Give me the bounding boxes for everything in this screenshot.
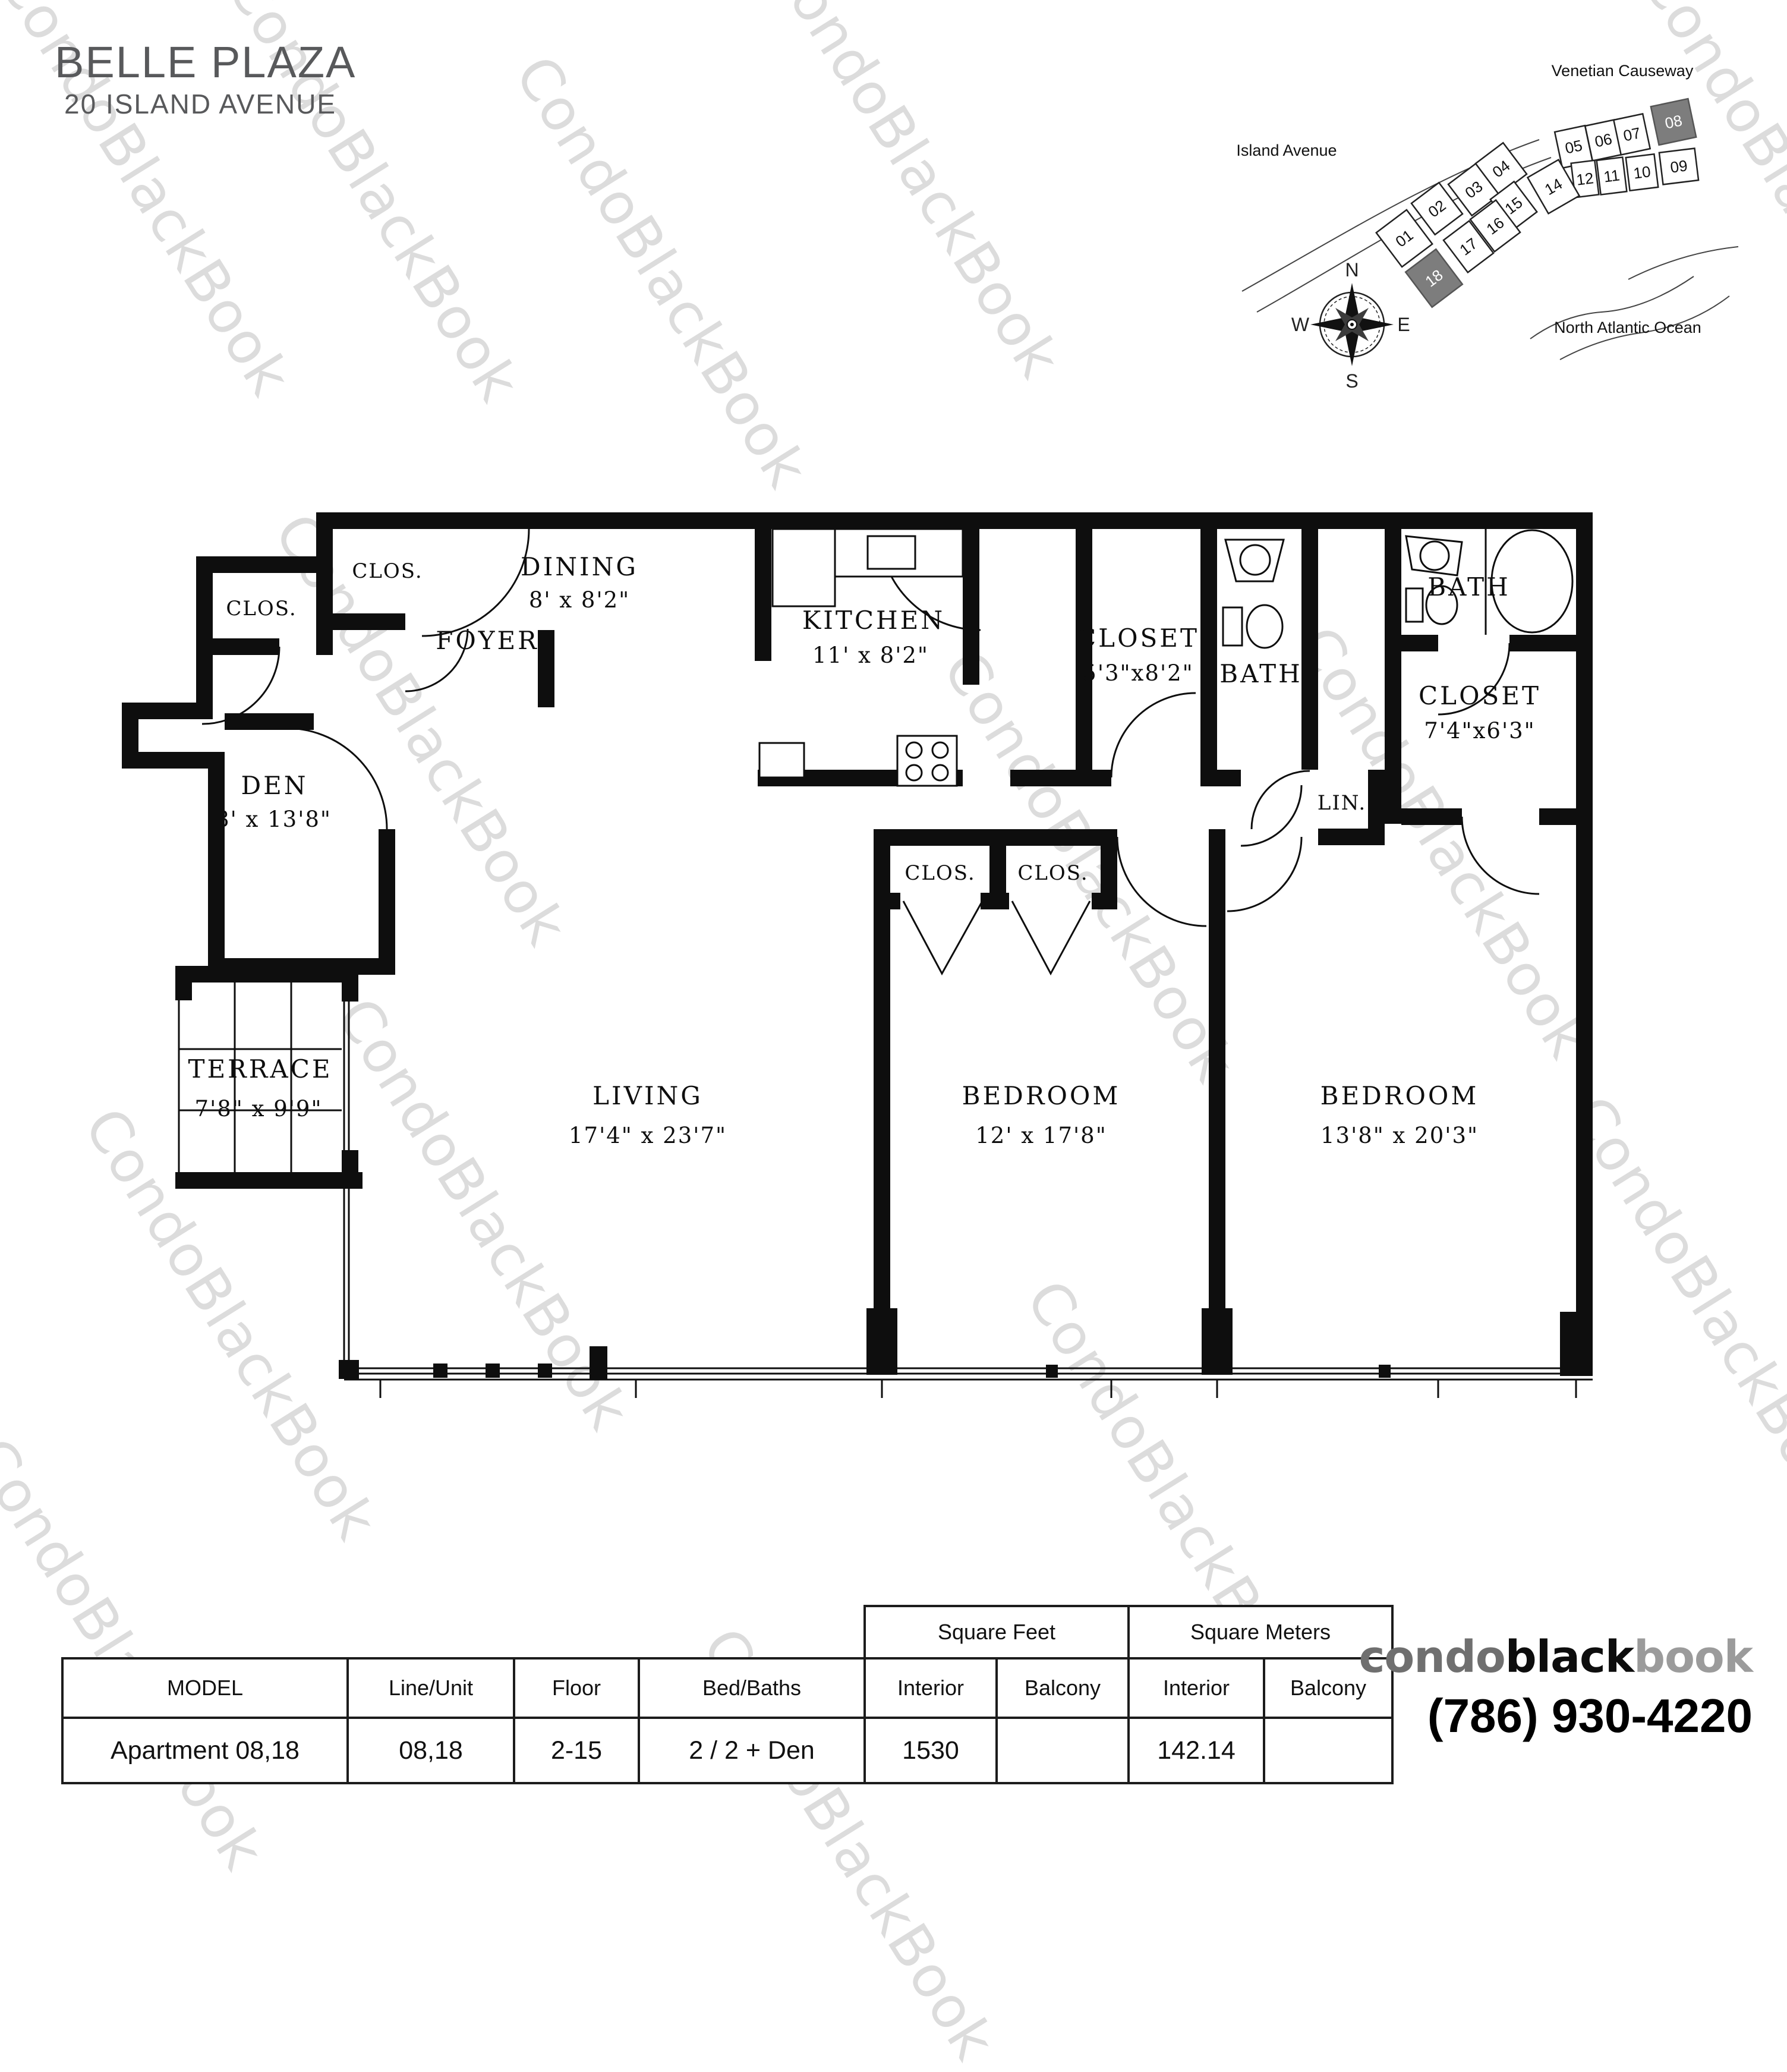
room-dims-kitchen: 11' x 8'2" (812, 643, 929, 668)
bedroom2-door-arc (1227, 837, 1301, 911)
room-label-bedroom-1: BEDROOM (962, 1081, 1121, 1110)
svg-text:07: 07 (1622, 124, 1643, 144)
compass-rose-icon: N E S W (1291, 259, 1410, 392)
room-dims-hall-closet: 5'3"x8'2" (1082, 660, 1193, 686)
col-header-sm-interior: Interior (1129, 1658, 1264, 1718)
svg-text:10: 10 (1632, 162, 1652, 182)
svg-text:12: 12 (1575, 169, 1594, 188)
label-north-atlantic-ocean: North Atlantic Ocean (1554, 319, 1701, 336)
door-arcs (202, 529, 1539, 974)
refrigerator-icon (773, 529, 835, 606)
unit-09: 09 (1659, 149, 1698, 185)
col-header-line-unit: Line/Unit (348, 1658, 514, 1718)
room-label-linen: LIN. (1318, 791, 1366, 815)
compass-south: S (1345, 370, 1358, 392)
compass-east: E (1397, 314, 1410, 335)
building-address: 20 ISLAND AVENUE (64, 88, 336, 120)
cell-sm-interior: 142.14 (1129, 1718, 1264, 1783)
label-island-avenue: Island Avenue (1236, 141, 1337, 159)
group-header-square-feet: Square Feet (865, 1606, 1129, 1658)
col-header-floor: Floor (514, 1658, 639, 1718)
floor-plan: CLOS. CLOS. FOYER DINING 8' x 8'2" KITCH… (101, 505, 1599, 1444)
cell-model: Apartment 08,18 (62, 1718, 348, 1783)
col-header-model: MODEL (62, 1658, 348, 1718)
col-header-bed-baths: Bed/Baths (639, 1658, 865, 1718)
building-title: BELLE PLAZA (55, 37, 356, 87)
room-label-bath-2: BATH (1427, 572, 1511, 602)
col-header-sf-interior: Interior (865, 1658, 997, 1718)
col-header-sf-balcony: Balcony (997, 1658, 1129, 1718)
cell-bed-baths: 2 / 2 + Den (639, 1718, 865, 1783)
unit-spec-table: Square Feet Square Meters MODEL Line/Uni… (61, 1605, 1394, 1784)
unit-11: 11 (1597, 158, 1627, 195)
table-spacer (62, 1606, 865, 1658)
condoblackbook-logo: condoblackbook (1359, 1632, 1753, 1683)
bifold-door-icon (1012, 901, 1090, 974)
room-label-bedroom-2: BEDROOM (1320, 1081, 1479, 1110)
room-dims-master-closet: 7'4"x6'3" (1424, 718, 1535, 744)
contact-phone: (786) 930-4220 (1359, 1689, 1753, 1743)
cell-sf-balcony (997, 1718, 1129, 1783)
entry-door-arc (422, 529, 529, 636)
kitchen-counter (759, 743, 804, 777)
cell-sf-interior: 1530 (865, 1718, 997, 1783)
svg-text:08: 08 (1663, 111, 1684, 132)
hall-closet-door-arc (1111, 693, 1196, 777)
shoreline (1628, 247, 1738, 279)
room-label-closet-entry-2: CLOS. (352, 559, 423, 583)
room-label-bath-1: BATH (1219, 659, 1303, 688)
room-label-terrace: TERRACE (188, 1054, 332, 1084)
table-row: Apartment 08,18 08,18 2-15 2 / 2 + Den 1… (62, 1718, 1392, 1783)
room-label-master-closet: CLOSET (1419, 681, 1541, 710)
group-header-square-meters: Square Meters (1129, 1606, 1392, 1658)
branding-block: condoblackbook (786) 930-4220 (1359, 1632, 1753, 1743)
room-label-foyer: FOYER (436, 626, 539, 655)
unit-08-highlighted: 08 (1651, 99, 1696, 145)
logo-part-book: book (1634, 1632, 1753, 1683)
bifold-door-icon (903, 901, 982, 974)
room-label-dining: DINING (521, 552, 638, 581)
sink-icon (868, 536, 915, 569)
unit-10: 10 (1626, 154, 1658, 190)
label-venetian-causeway: Venetian Causeway (1552, 62, 1694, 80)
watermark-text: CondoBlackBook (755, 0, 1073, 390)
room-label-kitchen: KITCHEN (802, 606, 945, 635)
svg-text:05: 05 (1564, 136, 1584, 157)
room-dims-bedroom-1: 12' x 17'8" (975, 1123, 1107, 1148)
stove-icon (897, 736, 957, 786)
site-location-map: Venetian Causeway Island Avenue North At… (1218, 24, 1765, 416)
logo-part-black: black (1505, 1632, 1634, 1683)
room-dims-den: 8' x 13'8" (215, 807, 332, 832)
cell-line-unit: 08,18 (348, 1718, 514, 1783)
unit-07: 07 (1613, 114, 1650, 155)
room-dims-terrace: 7'8" x 9'9" (195, 1096, 323, 1122)
room-label-den: DEN (241, 771, 308, 800)
svg-text:09: 09 (1669, 156, 1688, 176)
bath1-door-arc (1241, 785, 1301, 846)
toilet-icon (1406, 588, 1423, 622)
svg-text:06: 06 (1593, 130, 1614, 150)
room-label-closet-entry-1: CLOS. (226, 597, 297, 621)
linen-door-arc (1252, 771, 1310, 829)
room-label-bedroom-closet-1: CLOS. (904, 861, 975, 885)
cell-floor: 2-15 (514, 1718, 639, 1783)
room-dims-bedroom-2: 13'8" x 20'3" (1320, 1123, 1479, 1148)
master-closet-door-arc (1462, 817, 1539, 894)
room-label-bedroom-closet-2: CLOS. (1017, 861, 1088, 885)
room-dims-living: 17'4" x 23'7" (569, 1123, 727, 1148)
compass-west: W (1291, 314, 1310, 335)
closet1-door-arc (202, 647, 279, 724)
bedroom1-door-arc (1117, 837, 1206, 926)
room-label-living: LIVING (592, 1081, 703, 1110)
watermark-text: CondoBlackBook (502, 45, 821, 500)
toilet-icon (1223, 607, 1242, 645)
room-dims-dining: 8' x 8'2" (529, 587, 630, 613)
logo-part-condo: condo (1359, 1632, 1505, 1683)
room-label-hall-closet: CLOSET (1077, 624, 1199, 653)
building-units: 01 02 03 04 05 06 07 08 09 10 11 12 14 1… (1376, 99, 1698, 307)
compass-north: N (1345, 259, 1359, 281)
svg-text:11: 11 (1603, 166, 1621, 185)
